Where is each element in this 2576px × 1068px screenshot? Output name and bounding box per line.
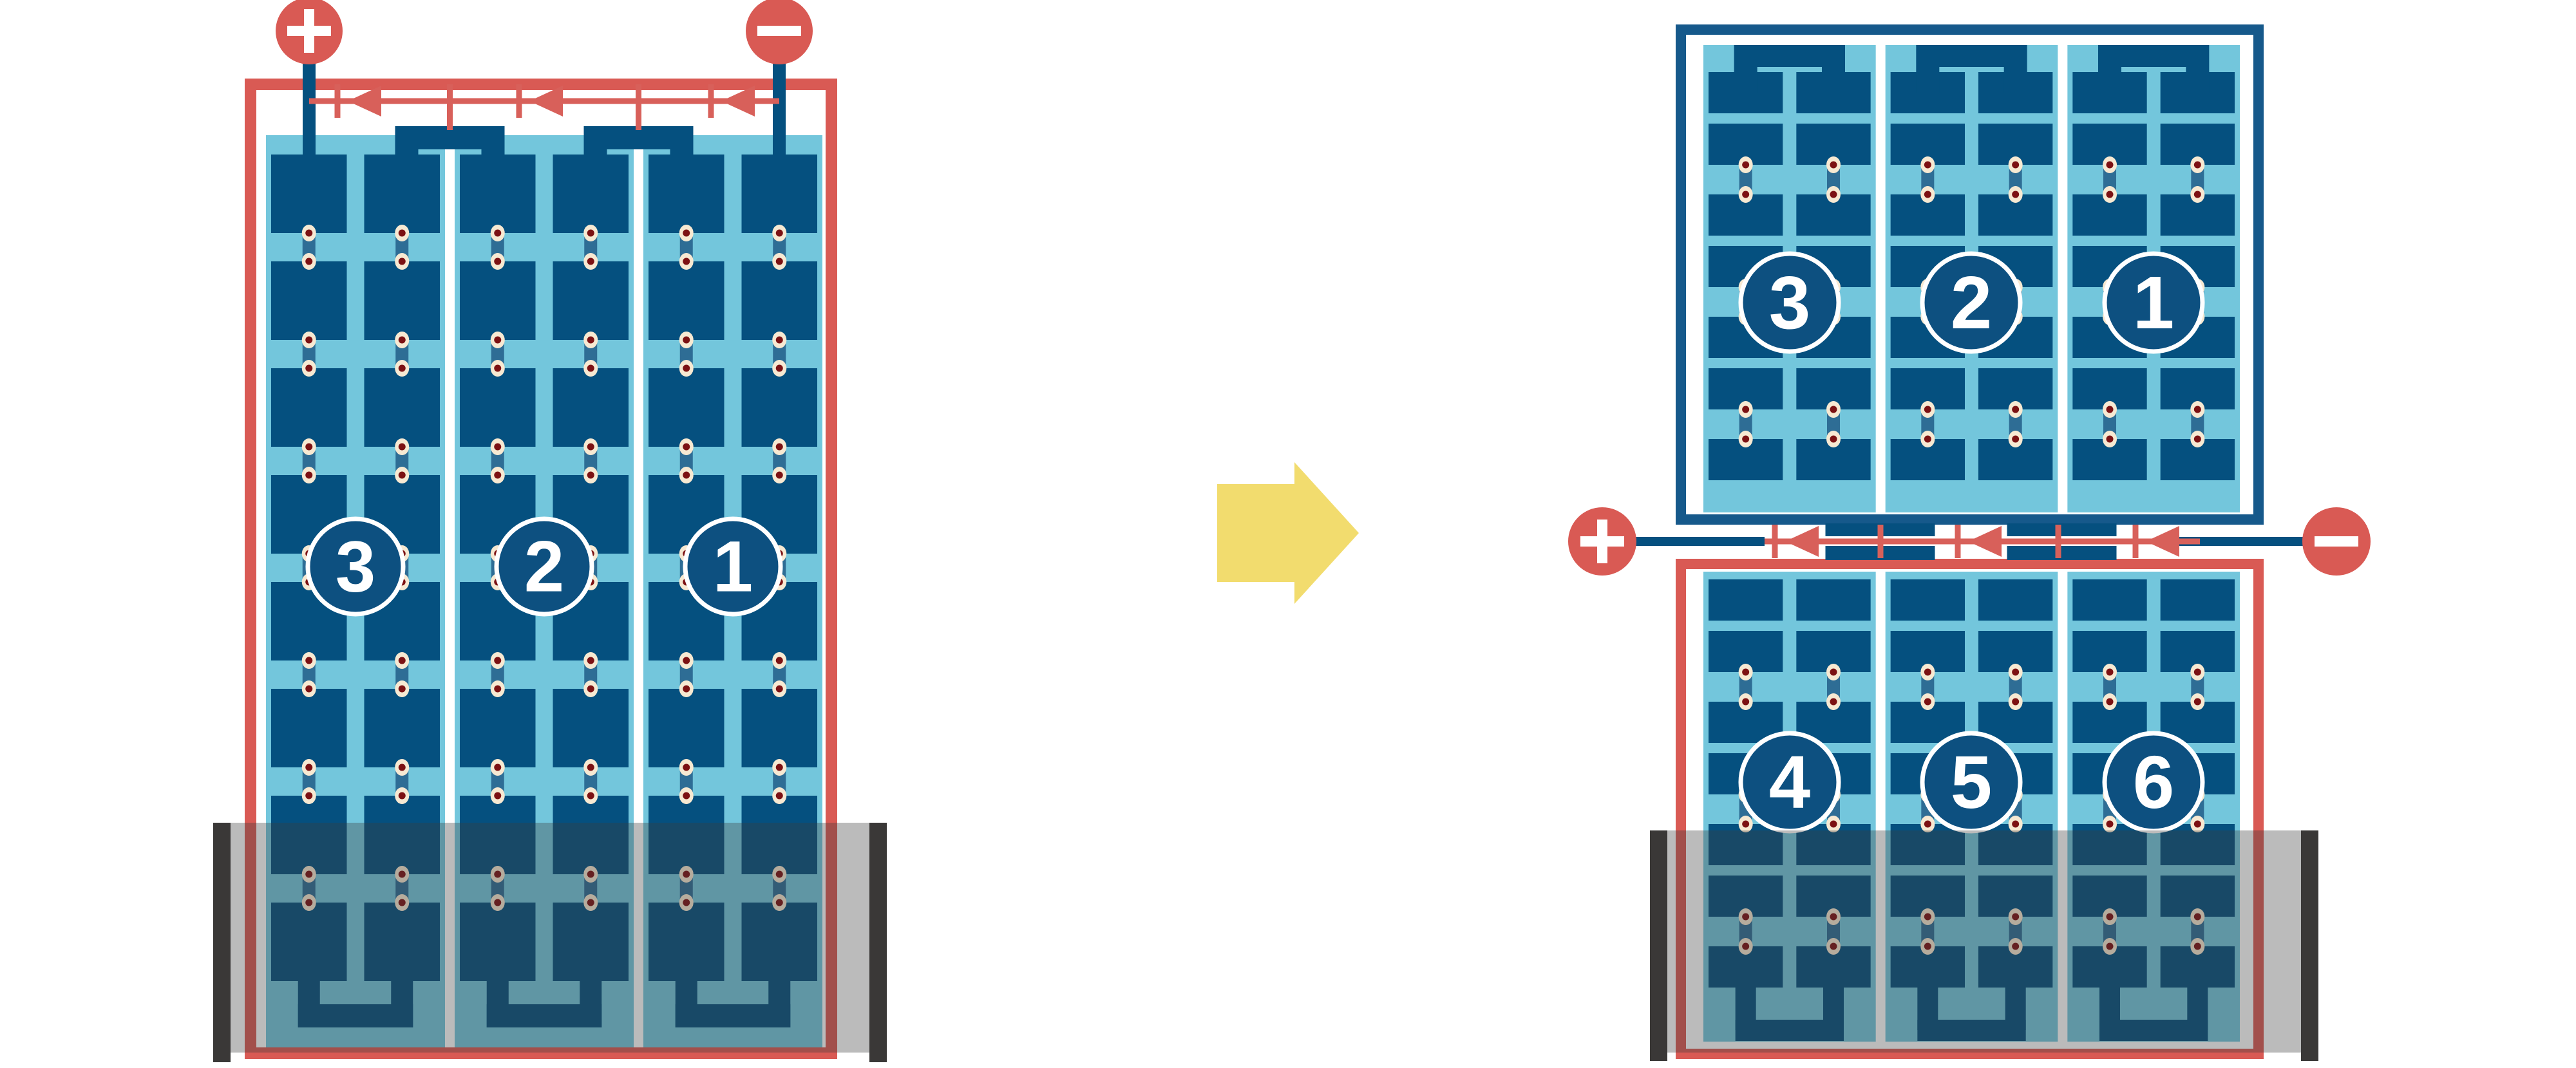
solder-dot-core (776, 230, 783, 237)
solar-cell (742, 261, 818, 340)
cell-interconnect (2103, 664, 2117, 710)
staple-arm (1822, 67, 1845, 93)
diode-triangle (1785, 526, 1819, 557)
solder-dot-core (494, 337, 501, 344)
solar-cell (1709, 579, 1783, 621)
solder-dot-core (1924, 821, 1931, 828)
staple-arm (1734, 67, 1757, 93)
solar-cell (742, 368, 818, 447)
diode-triangle (1968, 526, 2002, 557)
solar-cell (553, 261, 629, 340)
solder-dot-core (494, 258, 501, 265)
staple-arm (670, 126, 694, 212)
solder-dot-core (494, 472, 501, 479)
negative-terminal (2302, 507, 2371, 576)
solder-dot-core (2194, 821, 2201, 828)
cell-interconnect (302, 438, 316, 483)
solder-dot-core (2012, 406, 2019, 413)
cell-interconnect (2103, 401, 2117, 447)
solar-cell (365, 261, 440, 340)
cell-interconnect (772, 652, 786, 697)
cell-interconnect (491, 759, 505, 804)
solder-dot-core (587, 472, 594, 479)
solder-dot-core (399, 444, 406, 451)
module-number-badge: 2 (1922, 254, 2020, 351)
cell-interconnect (772, 225, 786, 270)
diode-cathode-bar (516, 84, 522, 118)
solder-dot-core (776, 792, 783, 800)
right-diagram: 321456 (1568, 30, 2371, 1061)
solder-dot-core (494, 230, 501, 237)
diode-cathode-bar (1772, 525, 1778, 558)
solder-dot-core (776, 657, 783, 664)
transform-arrow-icon (1217, 462, 1359, 604)
solder-dot-core (2107, 406, 2114, 413)
solder-dot-core (305, 230, 312, 237)
solder-dot-core (776, 258, 783, 265)
solar-cell (649, 261, 724, 340)
solar-cell (271, 368, 347, 447)
solder-dot-core (776, 365, 783, 372)
solder-dot-core (399, 337, 406, 344)
solder-dot-core (1742, 669, 1749, 676)
diode-triangle (348, 86, 381, 117)
solder-dot-core (587, 764, 594, 771)
cell-interconnect (2190, 401, 2204, 447)
plus-v-bar (304, 9, 314, 53)
staple-arm (2004, 67, 2027, 93)
solder-dot-core (305, 337, 312, 344)
solar-cell (649, 689, 724, 767)
solar-cell (460, 689, 536, 767)
cell-interconnect (395, 759, 409, 804)
cell-interconnect (1826, 401, 1841, 447)
solar-cell (365, 689, 440, 767)
minus-bar (2315, 536, 2358, 547)
cell-interconnect (491, 332, 505, 377)
solder-dot-core (305, 792, 312, 800)
solder-dot-core (1742, 406, 1749, 413)
diode-cathode-bar (708, 84, 714, 118)
cell-interconnect (1920, 156, 1935, 203)
solder-dot-core (305, 686, 312, 693)
solder-dot-core (2194, 698, 2201, 706)
junction-stub (636, 101, 641, 130)
solder-dot-core (587, 258, 594, 265)
staple-arm (395, 126, 419, 212)
solder-dot-core (1830, 191, 1837, 198)
positive-lead (303, 58, 316, 194)
solder-dot-core (399, 686, 406, 693)
solder-dot-core (494, 444, 501, 451)
solder-dot-core (305, 258, 312, 265)
solder-dot-core (776, 764, 783, 771)
solder-dot-core (2194, 669, 2201, 676)
solder-dot-core (1742, 698, 1749, 706)
shade-overlay (231, 823, 869, 1053)
shade-overlay (1667, 830, 2301, 1053)
solder-dot-core (1830, 669, 1837, 676)
cell-interconnect (772, 759, 786, 804)
solder-dot-core (2012, 191, 2019, 198)
solder-dot-core (587, 657, 594, 664)
diode-cathode-bar (335, 84, 341, 118)
module-number-badge: 3 (308, 519, 403, 614)
diode-cathode-bar (1955, 525, 1961, 558)
cell-interconnect (395, 332, 409, 377)
cell-interconnect (583, 332, 598, 377)
module-number-badge: 6 (2105, 733, 2202, 831)
module-number: 2 (524, 527, 564, 607)
solder-dot-core (2012, 162, 2019, 169)
cell-interconnect (1739, 156, 1753, 203)
cell-interconnect (491, 438, 505, 483)
solder-dot-core (683, 365, 690, 372)
cell-interconnect (1920, 401, 1935, 447)
cell-interconnect (1826, 664, 1841, 710)
right-top-panel: 321 (1681, 30, 2259, 536)
solder-dot-core (305, 444, 312, 451)
panel-link-tab (2007, 523, 2117, 536)
minus-icon (757, 26, 801, 36)
solar-cell (1978, 579, 2052, 621)
cell-interconnect (679, 759, 694, 804)
solder-dot-core (1830, 406, 1837, 413)
positive-terminal (1568, 507, 1636, 576)
solar-cell (460, 261, 536, 340)
solder-dot-core (1830, 162, 1837, 169)
solder-dot-core (494, 686, 501, 693)
cell-interconnect (583, 225, 598, 270)
solar-cell (1796, 579, 1870, 621)
solar-cell (271, 689, 347, 767)
solder-dot-core (1742, 436, 1749, 443)
solder-dot-core (494, 657, 501, 664)
cell-interconnect (302, 332, 316, 377)
cell-interconnect (302, 759, 316, 804)
cell-interconnect (583, 438, 598, 483)
minus-icon (2315, 536, 2358, 547)
module-number: 3 (336, 527, 375, 607)
solder-dot-core (399, 258, 406, 265)
cell-interconnect (2009, 664, 2023, 710)
staple-arm (2186, 67, 2209, 93)
cell-interconnect (1739, 401, 1753, 447)
solder-dot-core (399, 792, 406, 800)
junction-tick (1878, 525, 1884, 558)
staple-arm (482, 126, 505, 212)
cell-interconnect (302, 225, 316, 270)
solar-cell (271, 261, 347, 340)
solder-dot-core (683, 444, 690, 451)
module-number: 4 (1769, 740, 1811, 824)
cell-interconnect (491, 652, 505, 697)
solar-cell (365, 368, 440, 447)
module-separator (2058, 45, 2067, 512)
staple-arm (2098, 67, 2121, 93)
solder-dot-core (494, 792, 501, 800)
solder-dot-core (1924, 698, 1931, 706)
module-number: 2 (1951, 261, 1993, 344)
solder-dot-core (1924, 162, 1931, 169)
solder-dot-core (776, 444, 783, 451)
module-number-badge: 3 (1741, 254, 1839, 351)
solder-dot-core (683, 792, 690, 800)
solder-dot-core (1924, 436, 1931, 443)
solder-dot-core (2194, 436, 2201, 443)
solder-dot-core (683, 258, 690, 265)
solder-dot-core (776, 472, 783, 479)
cell-interconnect (2190, 664, 2204, 710)
cell-interconnect (2190, 156, 2204, 203)
module-number-badge: 4 (1741, 733, 1839, 831)
cell-interconnect (302, 652, 316, 697)
solder-dot-core (2107, 821, 2114, 828)
mounting-rail (2301, 830, 2318, 1061)
solar-cell (2161, 579, 2235, 621)
cell-interconnect (583, 652, 598, 697)
solder-dot-core (305, 657, 312, 664)
solder-dot-core (1830, 436, 1837, 443)
cell-interconnect (679, 225, 694, 270)
solder-dot-core (683, 657, 690, 664)
diode-triangle (2146, 526, 2179, 557)
solder-dot-core (2012, 436, 2019, 443)
module-number: 5 (1951, 740, 1993, 824)
junction-tick (2056, 525, 2061, 558)
module-separator (1876, 45, 1886, 512)
solder-dot-core (2107, 162, 2114, 169)
diode-triangle (529, 86, 563, 117)
solder-dot-core (494, 365, 501, 372)
module-number: 1 (713, 527, 753, 607)
solder-dot-core (776, 686, 783, 693)
cell-interconnect (679, 438, 694, 483)
staple-bar (2098, 45, 2209, 67)
cell-interconnect (583, 759, 598, 804)
cell-interconnect (395, 652, 409, 697)
solder-dot-core (399, 230, 406, 237)
wiring-diagram-canvas: 321321456 (0, 0, 2576, 1068)
plus-v-bar (1597, 520, 1607, 563)
solder-dot-core (399, 472, 406, 479)
solder-dot-core (2107, 669, 2114, 676)
cell-interconnect (395, 225, 409, 270)
solder-dot-core (587, 792, 594, 800)
module-number-badge: 5 (1922, 733, 2020, 831)
staple-bar (1734, 45, 1845, 67)
mounting-rail (869, 823, 887, 1062)
solder-dot-core (776, 337, 783, 344)
cell-interconnect (491, 225, 505, 270)
panel-link-tab (2007, 546, 2117, 560)
positive-terminal (276, 0, 343, 64)
cell-interconnect (1826, 156, 1841, 203)
solder-dot-core (1924, 191, 1931, 198)
solder-dot-core (494, 764, 501, 771)
staple-arm (1916, 67, 1939, 93)
cell-interconnect (2103, 156, 2117, 203)
solder-dot-core (2194, 191, 2201, 198)
junction-stub (447, 101, 453, 130)
left-diagram: 321 (213, 0, 887, 1062)
solder-dot-core (683, 337, 690, 344)
solder-dot-core (683, 686, 690, 693)
staple-arm (584, 126, 607, 212)
solder-dot-core (2194, 406, 2201, 413)
solder-dot-core (683, 472, 690, 479)
module-number: 6 (2133, 740, 2175, 824)
cell-interconnect (772, 438, 786, 483)
mounting-rail (213, 823, 231, 1062)
cell-interconnect (2009, 401, 2023, 447)
solar-cell (460, 368, 536, 447)
solder-dot-core (587, 444, 594, 451)
solder-dot-core (2107, 436, 2114, 443)
minus-bar (757, 26, 801, 36)
solder-dot-core (399, 764, 406, 771)
solder-dot-core (683, 764, 690, 771)
solder-dot-core (1742, 821, 1749, 828)
solder-dot-core (2194, 162, 2201, 169)
solder-dot-core (587, 230, 594, 237)
cell-interconnect (2009, 156, 2023, 203)
bypass-diode-bus (309, 84, 779, 130)
solder-dot-core (1924, 406, 1931, 413)
negative-lead (773, 58, 786, 194)
diagram-stage: 321321456 (0, 0, 2576, 1068)
solar-cell (742, 689, 818, 767)
solder-dot-core (2012, 669, 2019, 676)
solder-dot-core (305, 365, 312, 372)
solder-dot-core (399, 657, 406, 664)
solder-dot-core (1742, 191, 1749, 198)
module-number-badge: 1 (685, 519, 781, 614)
cell-interconnect (1920, 664, 1935, 710)
solder-dot-core (2107, 191, 2114, 198)
solder-dot-core (683, 230, 690, 237)
diode-triangle (721, 86, 755, 117)
solder-dot-core (1830, 821, 1837, 828)
solar-cell (1891, 579, 1965, 621)
staple-bar (1916, 45, 2027, 67)
cell-interconnect (772, 332, 786, 377)
solder-dot-core (1742, 162, 1749, 169)
solder-dot-core (1924, 669, 1931, 676)
negative-terminal (746, 0, 813, 64)
module-number: 3 (1769, 261, 1811, 344)
cell-interconnect (1739, 664, 1753, 710)
solder-dot-core (587, 686, 594, 693)
mounting-rail (1650, 830, 1667, 1061)
solder-dot-core (2012, 821, 2019, 828)
module-number-badge: 1 (2105, 254, 2202, 351)
diode-cathode-bar (2133, 525, 2139, 558)
solder-dot-core (305, 764, 312, 771)
solder-dot-core (587, 337, 594, 344)
solder-dot-core (399, 365, 406, 372)
module-number-badge: 2 (497, 519, 592, 614)
solar-cell (649, 368, 724, 447)
solder-dot-core (305, 472, 312, 479)
solar-cell (553, 689, 629, 767)
solar-cell (553, 368, 629, 447)
cell-interconnect (679, 652, 694, 697)
cell-interconnect (395, 438, 409, 483)
solder-dot-core (587, 365, 594, 372)
solder-dot-core (2012, 698, 2019, 706)
positive-lead (1636, 537, 1765, 546)
cell-interconnect (679, 332, 694, 377)
solder-dot-core (1830, 698, 1837, 706)
solar-cell (2072, 579, 2146, 621)
module-number: 1 (2133, 261, 2175, 344)
solder-dot-core (2107, 698, 2114, 706)
